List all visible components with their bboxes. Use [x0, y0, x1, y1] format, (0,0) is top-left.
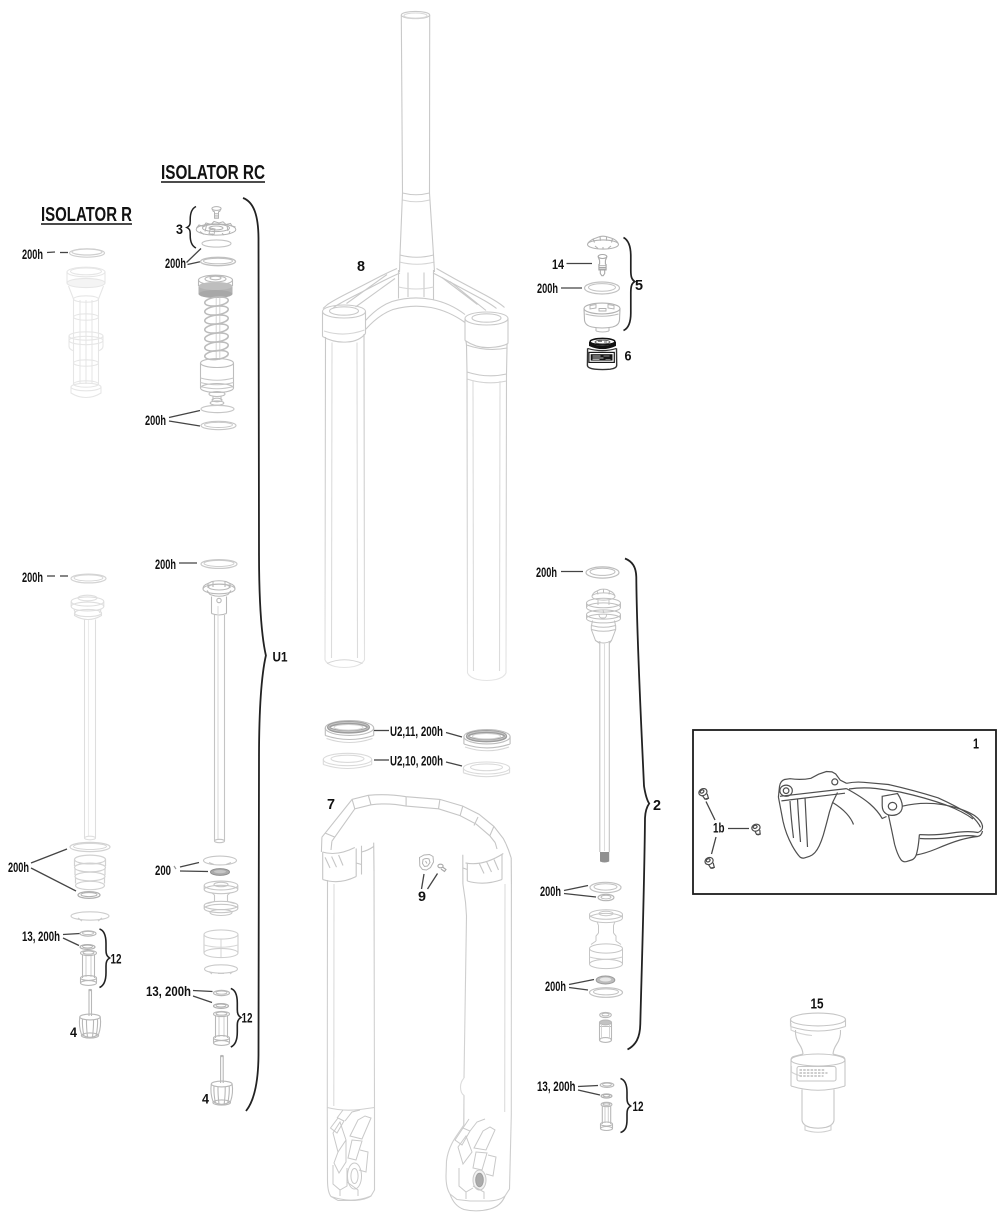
- svg-text:13, 200h: 13, 200h: [537, 1078, 576, 1094]
- svg-text:200h: 200h: [536, 564, 557, 580]
- svg-text:8: 8: [357, 258, 365, 275]
- svg-text:200h: 200h: [8, 859, 29, 875]
- svg-text:U1: U1: [273, 649, 288, 665]
- svg-text:ISOLATOR R: ISOLATOR R: [41, 204, 132, 226]
- svg-text:6: 6: [625, 348, 632, 364]
- svg-text:200h: 200h: [545, 978, 566, 994]
- svg-text:1b: 1b: [713, 820, 725, 836]
- svg-text:14: 14: [552, 256, 564, 272]
- svg-text:7: 7: [327, 796, 335, 813]
- svg-text:1: 1: [973, 736, 979, 753]
- svg-text:200h: 200h: [22, 569, 43, 585]
- svg-text:ISOLATOR RC: ISOLATOR RC: [161, 162, 265, 184]
- svg-text:200h: 200h: [145, 412, 166, 428]
- svg-text:200h: 200h: [165, 255, 186, 271]
- svg-text:4: 4: [202, 1091, 209, 1107]
- svg-text:5: 5: [635, 277, 643, 294]
- svg-text:13, 200h: 13, 200h: [146, 983, 191, 999]
- svg-text:200: 200: [155, 862, 171, 878]
- svg-text:15: 15: [811, 996, 824, 1013]
- svg-text:13, 200h: 13, 200h: [22, 928, 60, 944]
- svg-text:2: 2: [653, 797, 661, 814]
- svg-text:U2,10, 200h: U2,10, 200h: [390, 753, 443, 769]
- svg-text:200h: 200h: [22, 246, 43, 262]
- svg-text:12: 12: [633, 1098, 644, 1114]
- svg-text:12: 12: [242, 1010, 253, 1026]
- svg-text:200h: 200h: [540, 883, 561, 899]
- svg-text:12: 12: [111, 951, 122, 967]
- svg-text:200h: 200h: [537, 280, 558, 296]
- svg-text:U2,11, 200h: U2,11, 200h: [390, 723, 443, 739]
- svg-text:9: 9: [418, 888, 426, 904]
- svg-text:3: 3: [176, 221, 183, 237]
- svg-text:200h: 200h: [155, 556, 176, 572]
- svg-text:4: 4: [70, 1024, 77, 1040]
